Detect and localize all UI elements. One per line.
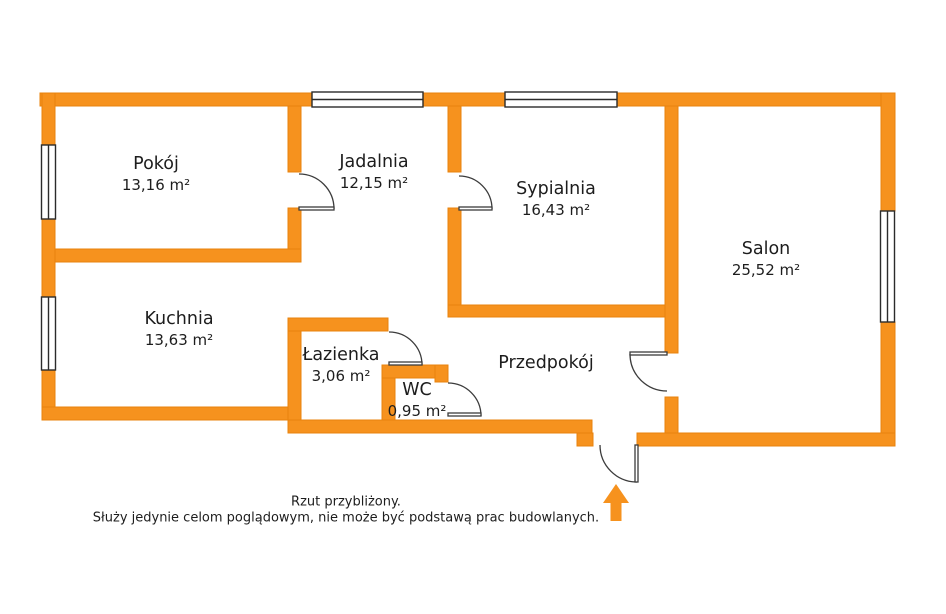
wall-pokoj-jadalnia-upper xyxy=(288,106,301,172)
disclaimer-line2: Służy jedynie celom poglądowym, nie może… xyxy=(93,510,599,526)
room-name-salon: Salon xyxy=(732,238,800,260)
room-name-jadalnia: Jadalnia xyxy=(339,151,408,173)
room-area-sypialnia: 16,43 m² xyxy=(516,200,596,220)
window-kuchnia xyxy=(42,297,56,370)
room-area-salon: 25,52 m² xyxy=(732,260,800,280)
room-area-pokoj: 13,16 m² xyxy=(122,175,190,195)
room-label-pokoj: Pokój 13,16 m² xyxy=(122,153,190,195)
disclaimer-line1: Rzut przybliżony. xyxy=(93,495,599,511)
room-label-sypialnia: Sypialnia 16,43 m² xyxy=(516,178,596,220)
wall-outer-bottom-right xyxy=(637,433,895,446)
room-label-wc: WC 0,95 m² xyxy=(388,379,447,421)
wall-sypialnia-przedpokoj xyxy=(448,305,678,317)
window-jadalnia xyxy=(312,92,423,107)
room-area-jadalnia: 12,15 m² xyxy=(339,173,408,193)
room-label-przedpokoj: Przedpokój xyxy=(498,352,593,374)
window-salon xyxy=(881,211,895,322)
wall-lazienka-top xyxy=(288,318,388,331)
wall-outer-right-b xyxy=(881,322,895,446)
wall-outer-bottom-left xyxy=(42,407,300,420)
door-lazienka xyxy=(389,332,422,365)
room-area-wc: 0,95 m² xyxy=(388,401,447,421)
window-pokoj xyxy=(42,145,56,219)
wall-outer-left-b xyxy=(42,219,55,297)
door-salon xyxy=(630,352,667,391)
wall-outer-bottom-mid xyxy=(288,420,592,433)
wall-salon-lower xyxy=(665,397,678,433)
room-name-wc: WC xyxy=(388,379,447,401)
wall-salon-upper xyxy=(665,106,678,353)
wall-jadalnia-sypialnia-lower xyxy=(448,208,461,317)
wall-outer-top xyxy=(40,93,895,106)
room-name-sypialnia: Sypialnia xyxy=(516,178,596,200)
room-label-jadalnia: Jadalnia 12,15 m² xyxy=(339,151,408,193)
room-label-lazienka: Łazienka 3,06 m² xyxy=(302,344,379,386)
room-name-lazienka: Łazienka xyxy=(302,344,379,366)
wall-outer-left-a xyxy=(42,93,55,145)
room-label-salon: Salon 25,52 m² xyxy=(732,238,800,280)
wall-outer-right-a xyxy=(881,93,895,211)
door-pokoj xyxy=(299,174,334,210)
wall-lazienka-left xyxy=(288,318,301,420)
door-sypialnia xyxy=(459,176,492,210)
wall-entrance-step xyxy=(577,433,593,446)
room-area-kuchnia: 13,63 m² xyxy=(144,330,213,350)
disclaimer-note: Rzut przybliżony. Służy jedynie celom po… xyxy=(93,495,599,526)
room-area-lazienka: 3,06 m² xyxy=(302,366,379,386)
room-name-kuchnia: Kuchnia xyxy=(144,308,213,330)
wall-jadalnia-sypialnia-upper xyxy=(448,106,461,172)
wall-pokoj-kuchnia xyxy=(55,249,301,262)
door-wc xyxy=(448,383,481,416)
floor-plan-page: Pokój 13,16 m² Jadalnia 12,15 m² Sypialn… xyxy=(0,0,946,614)
entrance-arrow-icon xyxy=(603,484,629,521)
window-sypialnia xyxy=(505,92,617,107)
door-entrance xyxy=(600,445,638,482)
room-name-przedpokoj: Przedpokój xyxy=(498,352,593,374)
room-name-pokoj: Pokój xyxy=(122,153,190,175)
room-label-kuchnia: Kuchnia 13,63 m² xyxy=(144,308,213,350)
